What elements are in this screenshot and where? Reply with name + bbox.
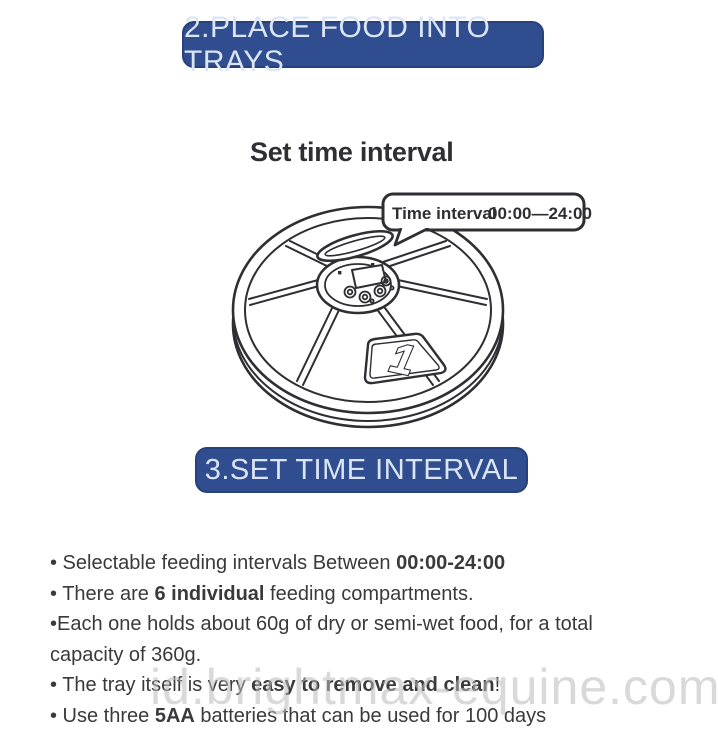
feature-line: •Each one holds about 60g of dry or semi… [50,609,704,640]
feature-line: capacity of 360g. [50,640,704,671]
set-time-interval-heading: Set time interval [250,137,453,168]
feature-line: • The tray itself is very easy to remove… [50,670,704,701]
feature-line: • Use three 5AA batteries that can be us… [50,701,704,731]
step2-banner: 2.PLACE FOOD INTO TRAYS [182,21,544,68]
feeder-line-art [233,207,503,427]
feature-line: • Selectable feeding intervals Between 0… [50,548,704,579]
step2-banner-label: 2.PLACE FOOD INTO TRAYS [184,11,542,79]
step3-banner-label: 3.SET TIME INTERVAL [205,454,519,487]
bubble-value: 00:00—24:00 [488,204,592,223]
feature-line: • There are 6 individual feeding compart… [50,579,704,610]
step3-banner: 3.SET TIME INTERVAL [195,447,528,493]
feature-list: • Selectable feeding intervals Between 0… [0,548,718,731]
feeder-diagram: 1 Time interval 00:00—24:00 [205,188,605,440]
bubble-label: Time interval [392,204,497,223]
